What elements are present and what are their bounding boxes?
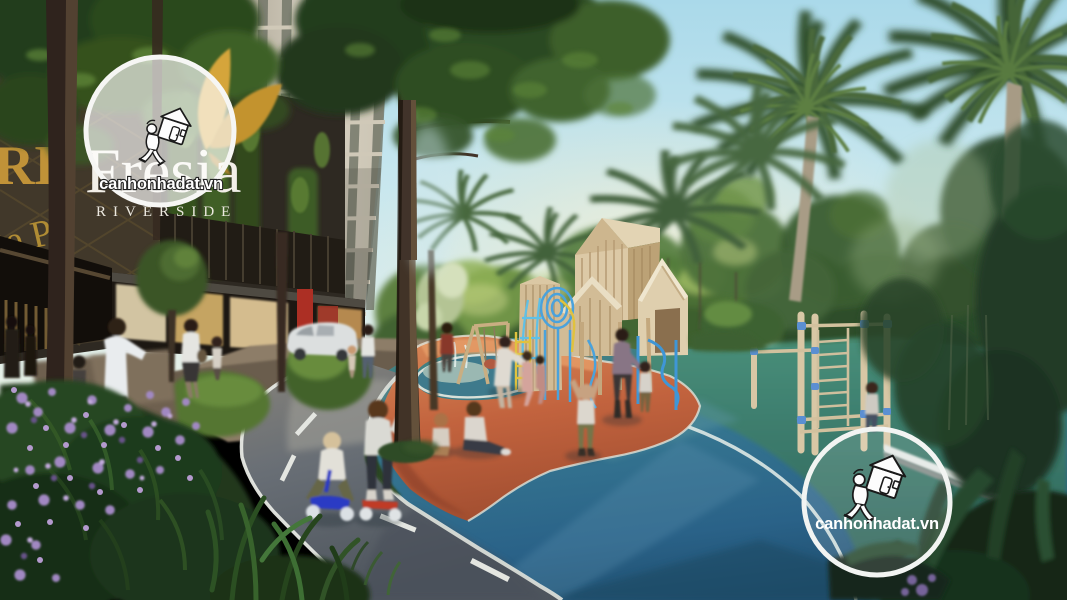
svg-text:canhonhadat.vn: canhonhadat.vn: [815, 515, 939, 533]
svg-text:canhonhadat.vn: canhonhadat.vn: [99, 175, 223, 193]
